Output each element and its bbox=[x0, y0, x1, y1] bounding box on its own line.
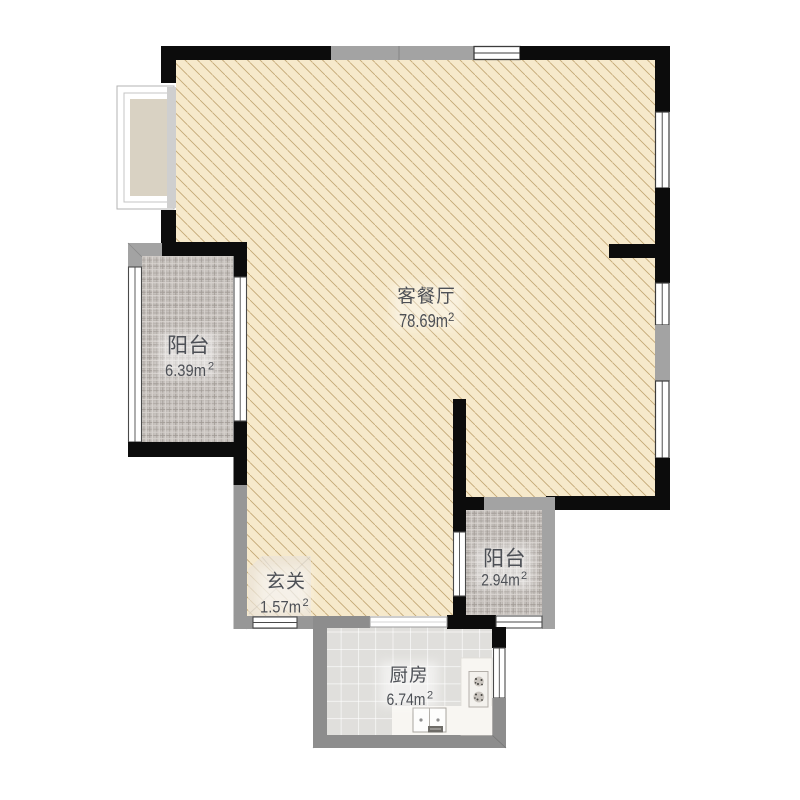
svg-text:78.69m: 78.69m bbox=[399, 311, 448, 331]
svg-text:2: 2 bbox=[521, 570, 527, 582]
svg-text:2: 2 bbox=[303, 597, 309, 609]
svg-text:6.39m: 6.39m bbox=[165, 361, 206, 380]
svg-text:2: 2 bbox=[208, 361, 214, 373]
svg-text:客餐厅: 客餐厅 bbox=[397, 286, 456, 307]
svg-text:阳台: 阳台 bbox=[483, 548, 526, 571]
svg-text:2.94m: 2.94m bbox=[481, 571, 520, 590]
svg-text:1.57m: 1.57m bbox=[260, 598, 301, 617]
svg-text:厨房: 厨房 bbox=[389, 665, 428, 686]
svg-text:6.74m: 6.74m bbox=[387, 690, 426, 709]
svg-text:玄关: 玄关 bbox=[266, 571, 306, 593]
svg-text:阳台: 阳台 bbox=[167, 335, 210, 358]
svg-text:2: 2 bbox=[448, 312, 454, 324]
svg-text:2: 2 bbox=[427, 690, 433, 702]
